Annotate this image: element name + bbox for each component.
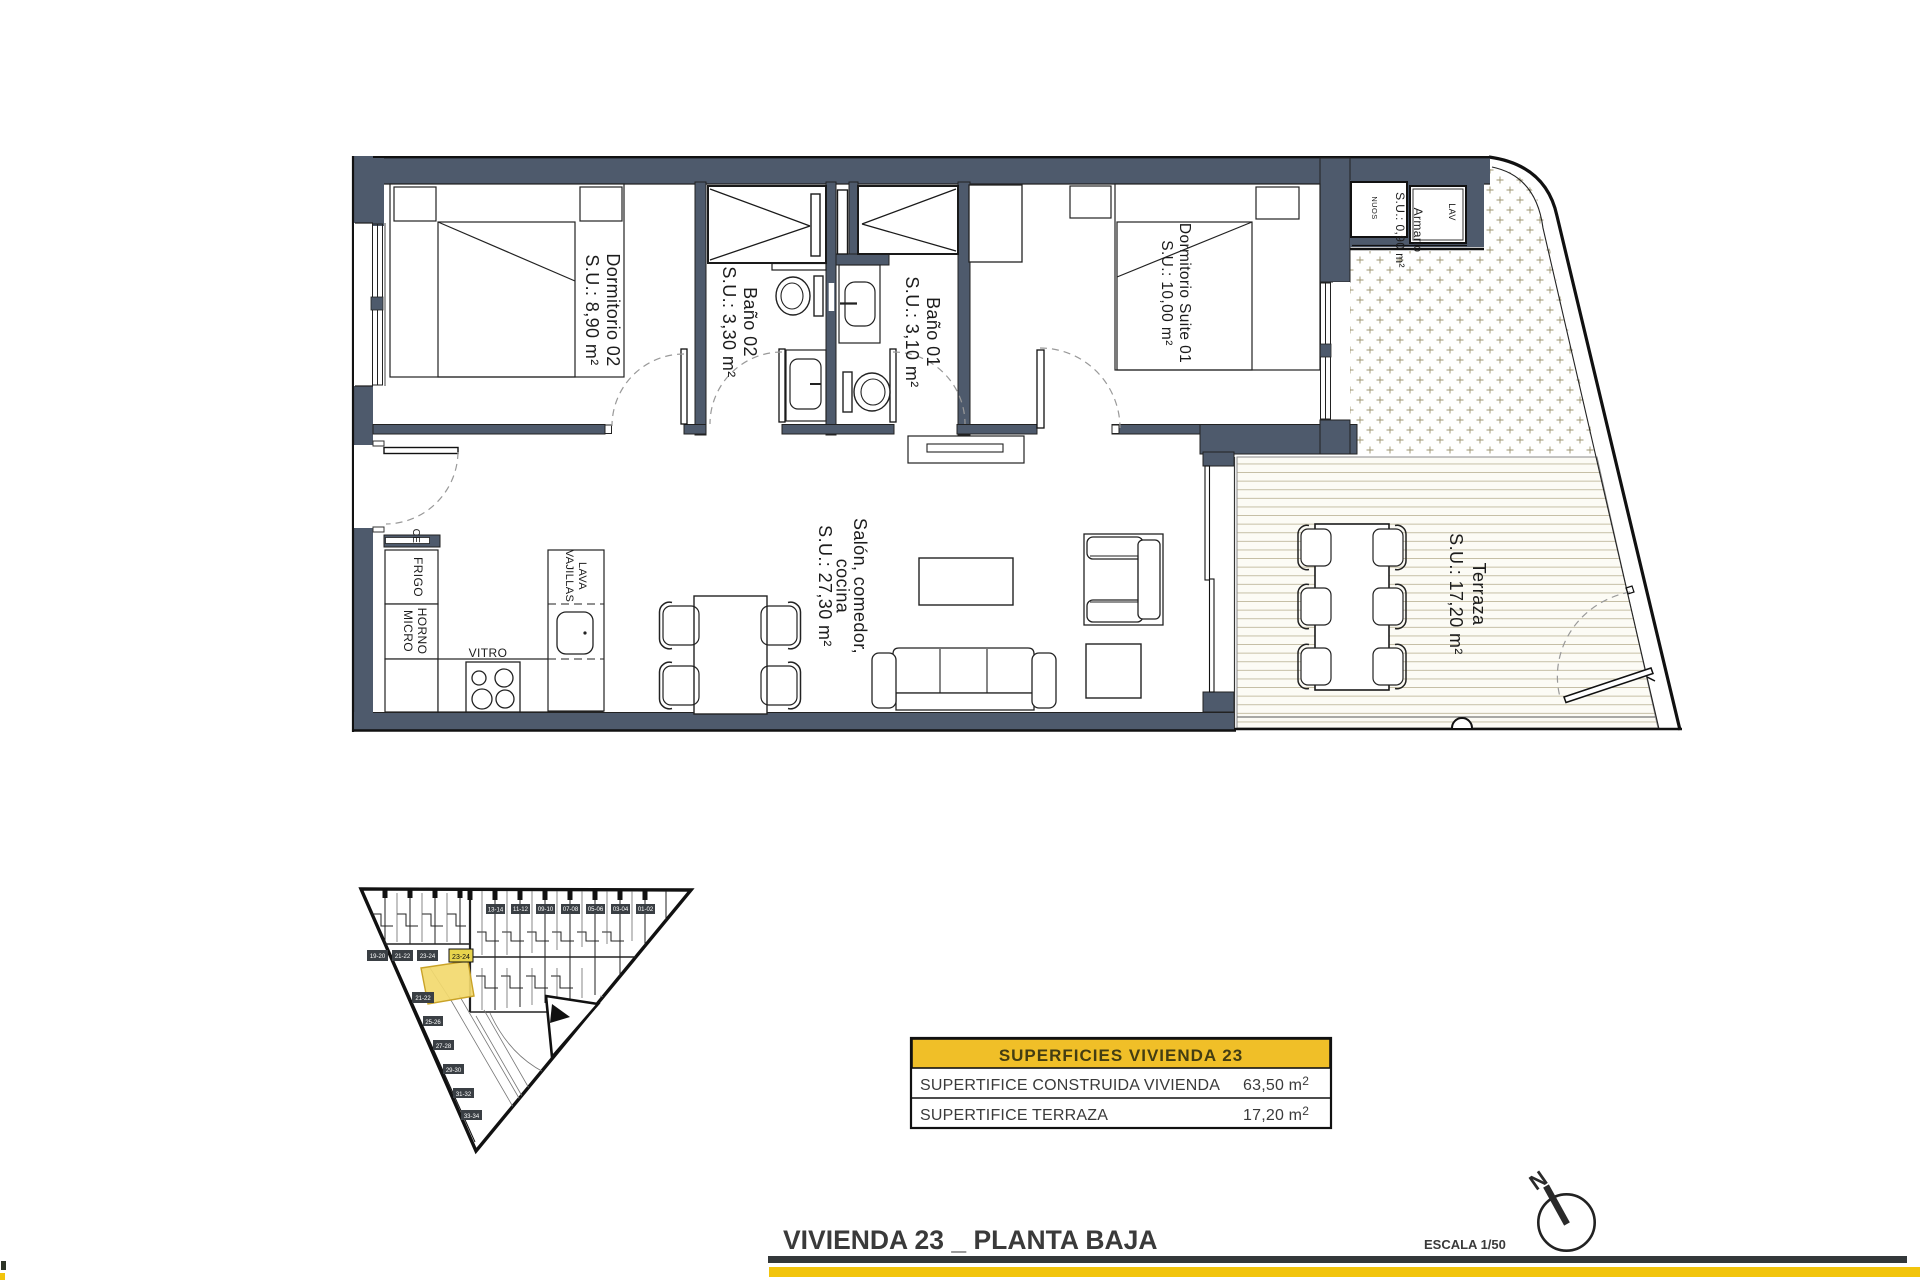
svg-text:21-22: 21-22 [395,954,411,960]
svg-text:Armario: Armario [1411,208,1425,253]
svg-text:S.U.: 8,90 m²: S.U.: 8,90 m² [582,254,602,365]
svg-text:LAVA: LAVA [576,562,588,590]
svg-text:Baño 02: Baño 02 [740,287,760,357]
svg-text:01-02: 01-02 [638,907,654,913]
svg-text:LAV: LAV [1447,203,1457,221]
svg-text:17,20 m2: 17,20 m2 [1243,1104,1309,1124]
svg-text:VIVIENDA 23 _ PLANTA BAJA: VIVIENDA 23 _ PLANTA BAJA [783,1225,1158,1255]
svg-text:S.U.: 10,00 m²: S.U.: 10,00 m² [1158,240,1175,346]
svg-text:Baño 01: Baño 01 [923,297,943,367]
svg-text:27-28: 27-28 [436,1044,452,1050]
svg-text:11-12: 11-12 [513,907,529,913]
svg-text:Dormitorio Suite 01: Dormitorio Suite 01 [1176,223,1193,363]
svg-text:05-06: 05-06 [588,907,604,913]
svg-text:25-26: 25-26 [425,1020,441,1026]
svg-text:VITRO: VITRO [469,646,508,660]
svg-text:FRIGO: FRIGO [411,557,425,597]
svg-text:SUPERTIFICE CONSTRUIDA VIVIEND: SUPERTIFICE CONSTRUIDA VIVIENDA [920,1077,1220,1094]
svg-text:31-32: 31-32 [456,1092,472,1098]
svg-text:NUOS: NUOS [1370,196,1379,219]
svg-text:19-20: 19-20 [370,954,386,960]
svg-text:23-24: 23-24 [452,954,470,961]
svg-text:03-04: 03-04 [613,907,629,913]
svg-text:07-08: 07-08 [563,907,579,913]
svg-text:63,50 m2: 63,50 m2 [1243,1074,1309,1094]
svg-text:S.U.: 3,10 m²: S.U.: 3,10 m² [902,276,922,387]
svg-text:13-14: 13-14 [488,908,504,914]
svg-text:Dormitorio 02: Dormitorio 02 [603,253,623,366]
svg-text:S.U.: 0,90 m²: S.U.: 0,90 m² [1393,192,1407,268]
svg-text:S.U.: 27,30 m²: S.U.: 27,30 m² [815,525,835,647]
svg-text:33-34: 33-34 [464,1114,480,1120]
svg-text:23-24: 23-24 [420,954,436,960]
svg-text:SUPERTIFICE TERRAZA: SUPERTIFICE TERRAZA [920,1107,1108,1124]
svg-text:ESCALA 1/50: ESCALA 1/50 [1424,1237,1506,1252]
svg-text:Terraza: Terraza [1469,563,1489,626]
svg-text:SUPERFICIES VIVIENDA 23: SUPERFICIES VIVIENDA 23 [999,1046,1243,1065]
svg-text:MICRO: MICRO [401,610,415,652]
svg-text:VAJILLAS: VAJILLAS [563,550,575,603]
svg-text:S.U.: 17,20 m²: S.U.: 17,20 m² [1446,533,1466,655]
svg-text:S.U.: 3,30 m²: S.U.: 3,30 m² [719,266,739,377]
svg-text:CE: CE [410,529,421,544]
svg-text:29-30: 29-30 [446,1068,462,1074]
svg-text:HORNO: HORNO [415,608,429,655]
svg-text:09-10: 09-10 [538,907,554,913]
svg-text:21-22: 21-22 [415,996,431,1002]
